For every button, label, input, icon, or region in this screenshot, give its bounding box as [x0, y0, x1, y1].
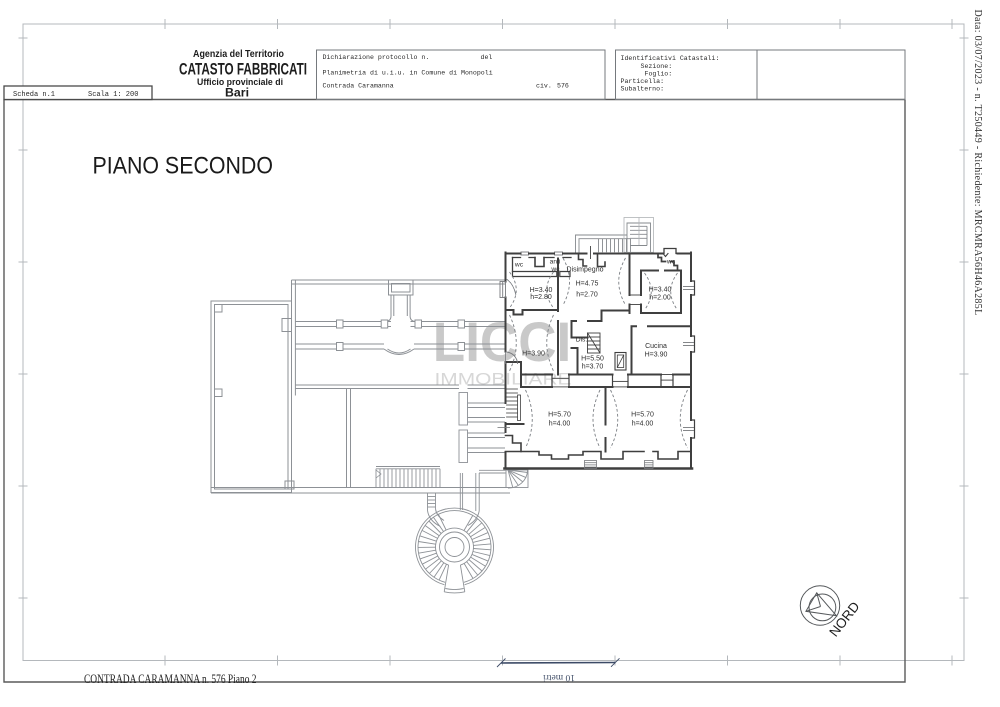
svg-text:Agenzia del Territorio: Agenzia del Territorio: [193, 48, 284, 60]
svg-text:civ.: civ.: [536, 83, 552, 90]
svg-text:wc: wc: [550, 266, 560, 273]
svg-text:Dichiarazione protocollo n.: Dichiarazione protocollo n.: [323, 54, 430, 61]
svg-text:PIANO SECONDO: PIANO SECONDO: [93, 153, 274, 180]
svg-text:h=2.80: h=2.80: [530, 294, 552, 301]
svg-text:10 metri: 10 metri: [543, 672, 575, 682]
svg-text:H=3.40: H=3.40: [649, 287, 672, 294]
svg-text:Disimpegno: Disimpegno: [567, 267, 604, 274]
svg-text:h=2.70: h=2.70: [576, 292, 598, 299]
svg-text:Foglio:: Foglio:: [645, 71, 673, 78]
svg-text:anti: anti: [550, 259, 561, 266]
svg-text:576: 576: [557, 83, 569, 90]
svg-text:H=5.70: H=5.70: [631, 412, 654, 419]
svg-text:H=3.40: H=3.40: [530, 287, 553, 294]
svg-text:wc: wc: [514, 262, 524, 269]
svg-text:h=2.00: h=2.00: [649, 295, 671, 302]
svg-text:H=5.70: H=5.70: [548, 412, 571, 419]
svg-text:Planimetria di u.i.u. in Comun: Planimetria di u.i.u. in Comune di Monop…: [323, 70, 493, 77]
svg-text:CONTRADA CARAMANNA n. 576 Pian: CONTRADA CARAMANNA n. 576 Piano 2: [84, 671, 257, 686]
svg-text:Identificativi Catastali:: Identificativi Catastali:: [621, 55, 720, 62]
svg-text:Data: 03/07/2023 - n. T250449: Data: 03/07/2023 - n. T250449 - Richiede…: [972, 10, 983, 316]
svg-text:Bari: Bari: [225, 88, 249, 100]
svg-text:Cucina: Cucina: [645, 343, 667, 350]
svg-text:Particella:: Particella:: [621, 78, 665, 85]
svg-text:Scala 1: 200: Scala 1: 200: [88, 91, 138, 99]
svg-text:Sezione:: Sezione:: [641, 63, 673, 70]
svg-text:H=3.90: H=3.90: [522, 350, 545, 357]
svg-text:CATASTO FABBRICATI: CATASTO FABBRICATI: [179, 60, 307, 79]
svg-text:Dis.: Dis.: [576, 337, 588, 344]
svg-text:H=3.90: H=3.90: [645, 352, 668, 359]
svg-text:h=4.00: h=4.00: [549, 421, 571, 428]
svg-text:IMMOBILIARE: IMMOBILIARE: [435, 371, 572, 389]
svg-text:H=5.50: H=5.50: [581, 356, 604, 363]
svg-text:h=3.70: h=3.70: [582, 364, 604, 371]
svg-text:Subalterno:: Subalterno:: [621, 86, 665, 93]
svg-text:Ufficio provinciale di: Ufficio provinciale di: [197, 77, 283, 87]
svg-text:Contrada Caramanna: Contrada Caramanna: [323, 83, 394, 90]
svg-text:Scheda n.1: Scheda n.1: [13, 91, 55, 99]
svg-text:wc: wc: [666, 259, 676, 266]
svg-text:h=4.00: h=4.00: [632, 421, 654, 428]
svg-text:del: del: [481, 54, 493, 61]
svg-text:H=4.75: H=4.75: [576, 281, 599, 288]
